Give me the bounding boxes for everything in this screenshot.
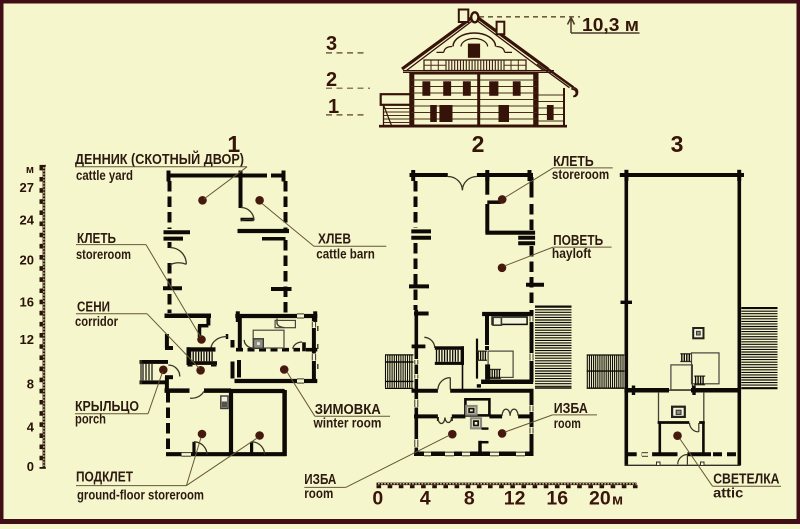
svg-text:ground-floor storeroom: ground-floor storeroom xyxy=(77,488,204,503)
svg-text:cattle barn: cattle barn xyxy=(316,246,375,261)
svg-text:2: 2 xyxy=(472,131,485,157)
svg-text:10,3 м: 10,3 м xyxy=(582,14,639,35)
svg-text:3: 3 xyxy=(671,131,684,157)
svg-text:2: 2 xyxy=(326,69,337,91)
svg-text:4: 4 xyxy=(27,420,35,435)
svg-text:corridor: corridor xyxy=(75,314,119,329)
svg-text:м: м xyxy=(612,492,623,509)
svg-text:20: 20 xyxy=(589,488,611,510)
svg-text:12: 12 xyxy=(20,332,34,347)
svg-text:24: 24 xyxy=(20,213,35,228)
svg-text:storeroom: storeroom xyxy=(552,167,609,182)
svg-text:ДЕННИК (СКОТНЫЙ ДВОР): ДЕННИК (СКОТНЫЙ ДВОР) xyxy=(75,150,244,168)
svg-text:20: 20 xyxy=(20,253,34,268)
svg-text:0: 0 xyxy=(372,488,383,510)
svg-text:0: 0 xyxy=(27,459,34,474)
svg-text:room: room xyxy=(304,486,333,501)
svg-text:8: 8 xyxy=(27,377,34,392)
svg-text:attic: attic xyxy=(713,486,744,501)
svg-text:м: м xyxy=(26,164,34,176)
svg-text:27: 27 xyxy=(20,180,34,195)
svg-text:cattle yard: cattle yard xyxy=(76,168,133,183)
svg-text:porch: porch xyxy=(75,412,106,427)
svg-text:winter room: winter room xyxy=(313,416,382,431)
svg-text:ХЛЕВ: ХЛЕВ xyxy=(318,232,351,248)
svg-text:16: 16 xyxy=(546,488,568,510)
svg-text:hayloft: hayloft xyxy=(552,246,592,261)
svg-text:storeroom: storeroom xyxy=(76,247,131,262)
svg-text:1: 1 xyxy=(328,96,339,118)
svg-text:room: room xyxy=(554,416,581,431)
svg-text:4: 4 xyxy=(420,488,431,510)
svg-text:12: 12 xyxy=(504,488,526,510)
svg-text:3: 3 xyxy=(326,33,337,55)
svg-text:16: 16 xyxy=(20,295,34,310)
svg-text:ПОДКЛЕТ: ПОДКЛЕТ xyxy=(76,470,133,486)
svg-text:8: 8 xyxy=(464,488,475,510)
